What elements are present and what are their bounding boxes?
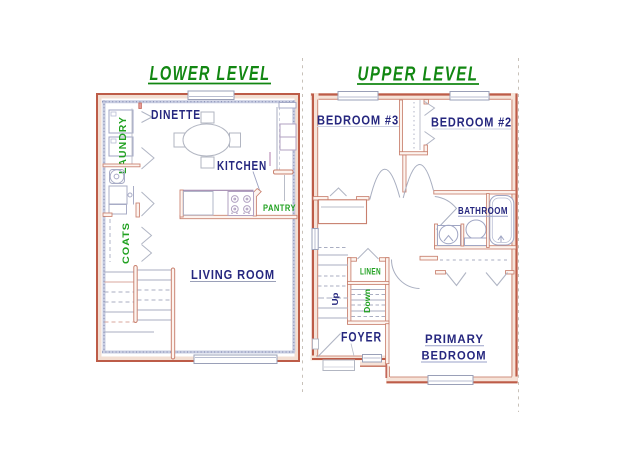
svg-text:LOWER LEVEL: LOWER LEVEL bbox=[150, 63, 271, 85]
svg-text:FOYER: FOYER bbox=[341, 330, 382, 345]
svg-text:BATHROOM: BATHROOM bbox=[458, 206, 508, 217]
svg-text:BEDROOM: BEDROOM bbox=[422, 349, 487, 363]
svg-text:PANTRY: PANTRY bbox=[263, 203, 296, 214]
svg-text:DINETTE: DINETTE bbox=[151, 108, 201, 122]
svg-text:BEDROOM #3: BEDROOM #3 bbox=[317, 113, 399, 128]
svg-text:BEDROOM #2: BEDROOM #2 bbox=[431, 115, 512, 130]
svg-text:KITCHEN: KITCHEN bbox=[217, 159, 267, 173]
svg-text:Up: Up bbox=[331, 292, 340, 305]
svg-text:PRIMARY: PRIMARY bbox=[425, 332, 484, 346]
svg-text:Down: Down bbox=[363, 289, 372, 313]
svg-text:LINEN: LINEN bbox=[360, 267, 381, 278]
svg-text:COATS: COATS bbox=[121, 222, 131, 264]
svg-text:LIVING ROOM: LIVING ROOM bbox=[191, 268, 275, 282]
svg-text:UPPER LEVEL: UPPER LEVEL bbox=[358, 64, 479, 86]
